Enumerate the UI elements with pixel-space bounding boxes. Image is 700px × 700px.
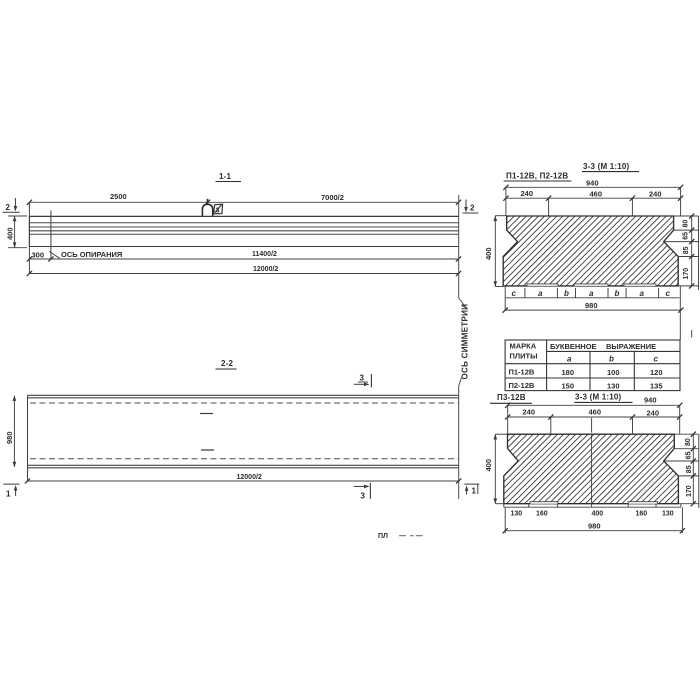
svg-text:b: b: [615, 289, 620, 298]
svg-text:80: 80: [683, 220, 690, 228]
svg-text:160: 160: [636, 511, 648, 518]
svg-text:240: 240: [649, 190, 662, 199]
svg-text:2500: 2500: [110, 192, 127, 201]
svg-text:180: 180: [562, 368, 575, 377]
svg-text:2-2: 2-2: [221, 359, 234, 368]
svg-text:b: b: [564, 289, 569, 298]
svg-text:170: 170: [683, 268, 690, 280]
svg-text:ПЛИТЫ: ПЛИТЫ: [510, 352, 538, 361]
svg-text:400: 400: [484, 247, 493, 260]
svg-text:980: 980: [585, 301, 598, 310]
svg-text:2: 2: [470, 204, 475, 213]
svg-text:11400/2: 11400/2: [252, 251, 277, 258]
svg-text:400: 400: [592, 511, 604, 518]
svg-text:— ­ – —: — ­ – —: [399, 533, 423, 540]
svg-text:2: 2: [6, 203, 11, 212]
svg-text:400: 400: [6, 227, 15, 240]
svg-text:a: a: [640, 289, 645, 298]
svg-text:240: 240: [521, 189, 534, 198]
svg-text:П1-12В, П2-12В: П1-12В, П2-12В: [506, 172, 568, 181]
svg-text:980: 980: [588, 522, 601, 531]
svg-text:b: b: [609, 355, 614, 364]
svg-text:980: 980: [5, 431, 14, 444]
svg-text:ОСЬ ОПИРАНИЯ: ОСЬ ОПИРАНИЯ: [61, 250, 122, 259]
svg-text:a: a: [538, 289, 543, 298]
svg-text:3: 3: [216, 207, 220, 214]
svg-text:a: a: [567, 355, 572, 364]
svg-text:120: 120: [650, 368, 663, 377]
svg-text:3: 3: [360, 374, 365, 383]
svg-text:100: 100: [607, 368, 620, 377]
svg-text:460: 460: [589, 408, 602, 417]
svg-text:135: 135: [650, 381, 663, 390]
svg-text:П1-12В: П1-12В: [509, 368, 535, 377]
svg-text:130: 130: [607, 381, 620, 390]
svg-text:МАРКА: МАРКА: [510, 342, 537, 351]
svg-text:ОСЬ СИММЕТРИИ: ОСЬ СИММЕТРИИ: [461, 304, 470, 380]
svg-text:a: a: [589, 289, 594, 298]
svg-text:240: 240: [647, 408, 660, 417]
svg-text:130: 130: [662, 511, 674, 518]
svg-text:ВЫРАЖЕНИЕ: ВЫРАЖЕНИЕ: [606, 342, 656, 351]
svg-text:65: 65: [683, 232, 690, 240]
svg-text:П3-12В: П3-12В: [497, 393, 526, 402]
svg-text:940: 940: [644, 396, 657, 405]
svg-text:БУКВЕННОЕ: БУКВЕННОЕ: [550, 342, 597, 351]
svg-text:85: 85: [683, 246, 690, 254]
svg-text:160: 160: [536, 511, 548, 518]
svg-text:ПЛ: ПЛ: [378, 533, 388, 540]
svg-text:460: 460: [590, 189, 603, 198]
svg-text:1: 1: [472, 487, 477, 496]
svg-text:3: 3: [361, 492, 366, 501]
svg-text:85: 85: [686, 465, 693, 473]
svg-text:1-1: 1-1: [219, 172, 232, 181]
svg-text:1: 1: [6, 490, 11, 499]
svg-text:c: c: [512, 289, 517, 298]
svg-text:65: 65: [686, 451, 693, 459]
svg-text:3-3 (М 1:10): 3-3 (М 1:10): [575, 393, 622, 402]
svg-text:240: 240: [523, 408, 536, 417]
svg-text:130: 130: [511, 511, 523, 518]
svg-text:12000/2: 12000/2: [253, 266, 278, 273]
svg-text:300: 300: [32, 251, 45, 260]
svg-text:170: 170: [686, 485, 693, 497]
svg-text:7000/2: 7000/2: [321, 193, 344, 202]
svg-text:150: 150: [562, 381, 575, 390]
svg-text:c: c: [654, 355, 659, 364]
svg-text:80: 80: [685, 438, 692, 446]
svg-text:c: c: [666, 289, 671, 298]
svg-text:П2-12В: П2-12В: [509, 381, 535, 390]
svg-text:12000/2: 12000/2: [237, 474, 262, 481]
svg-text:400: 400: [484, 459, 493, 472]
svg-text:3-3 (М 1:10): 3-3 (М 1:10): [583, 162, 630, 171]
svg-text:940: 940: [586, 178, 599, 187]
